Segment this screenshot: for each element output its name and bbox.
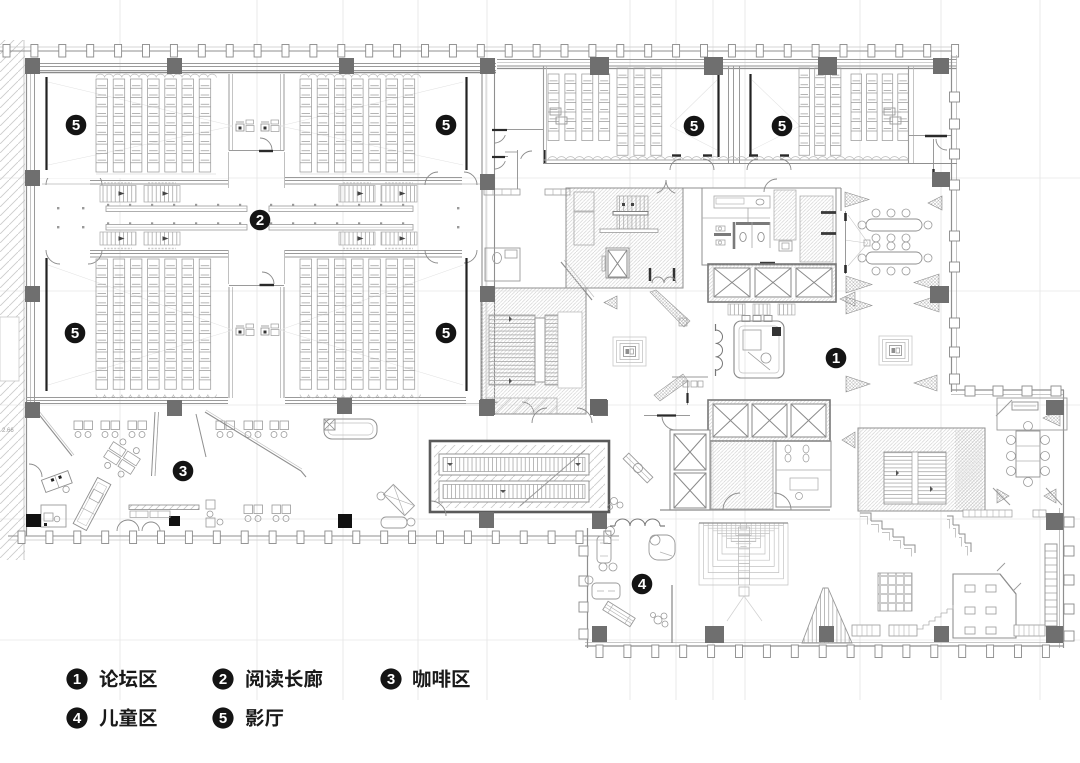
svg-text:2.66: 2.66 (2, 428, 14, 434)
svg-text:3: 3 (387, 671, 395, 688)
svg-text:2: 2 (256, 212, 264, 229)
svg-text:5: 5 (219, 710, 227, 727)
svg-text:5: 5 (442, 117, 450, 134)
svg-text:1: 1 (73, 671, 81, 688)
svg-text:3: 3 (179, 463, 187, 480)
svg-text:5: 5 (72, 117, 80, 134)
svg-text:5: 5 (442, 325, 450, 342)
svg-text:5: 5 (690, 118, 698, 135)
svg-text:5: 5 (778, 118, 786, 135)
svg-text:5: 5 (71, 325, 79, 342)
svg-text:4: 4 (638, 576, 647, 593)
svg-text:4: 4 (73, 710, 82, 727)
svg-text:2: 2 (219, 671, 227, 688)
svg-text:1: 1 (832, 350, 840, 367)
